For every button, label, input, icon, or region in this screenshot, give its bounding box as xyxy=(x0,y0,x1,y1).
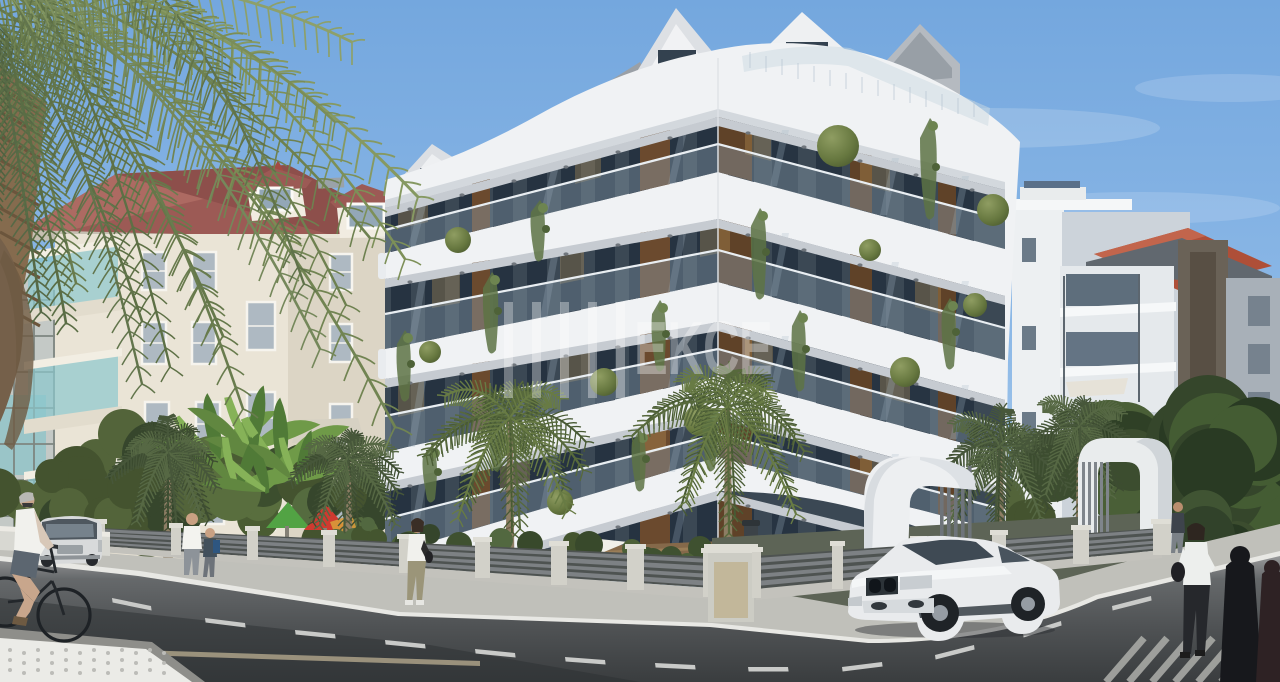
svg-text:EKCE: EKCE xyxy=(634,306,772,390)
